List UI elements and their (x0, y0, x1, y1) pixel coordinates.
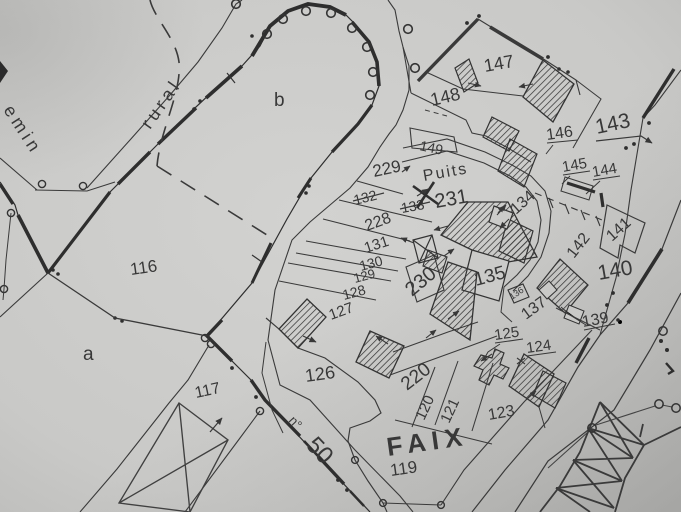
svg-text:b: b (274, 90, 285, 111)
svg-text:126: 126 (304, 362, 337, 386)
svg-text:a: a (83, 344, 94, 365)
svg-text:116: 116 (129, 256, 158, 279)
svg-text:119: 119 (389, 457, 418, 480)
